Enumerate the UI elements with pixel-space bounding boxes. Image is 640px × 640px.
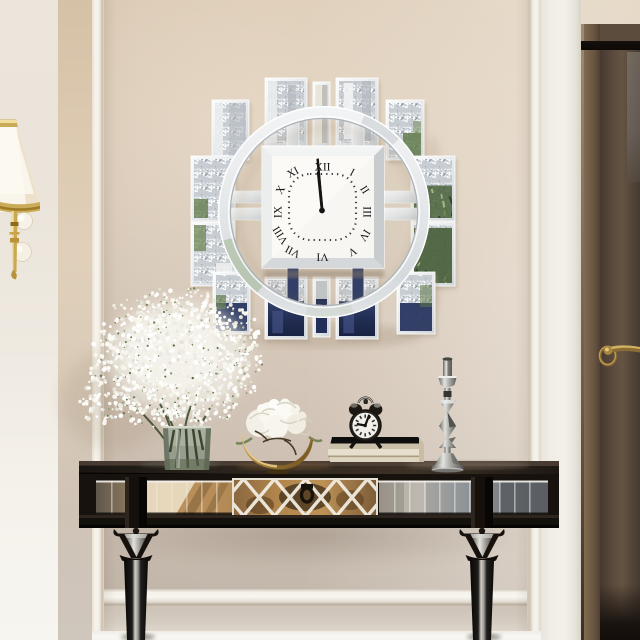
svg-text:IX: IX [272,205,284,218]
svg-text:VI: VI [316,251,328,263]
svg-text:III: III [361,206,373,218]
